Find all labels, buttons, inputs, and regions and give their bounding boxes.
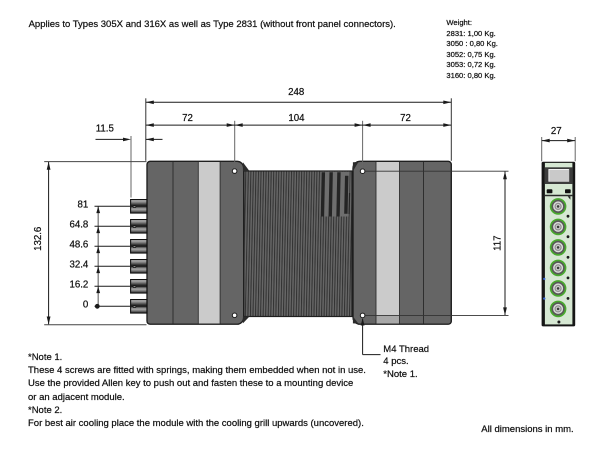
svg-text:11.5: 11.5 [96,124,114,135]
svg-text:81: 81 [78,200,89,211]
svg-text:27: 27 [551,126,562,137]
svg-text:132.6: 132.6 [33,227,44,251]
svg-text:248: 248 [288,87,304,98]
svg-text:72: 72 [182,113,193,124]
svg-text:16.2: 16.2 [69,280,88,291]
svg-text:64.8: 64.8 [69,220,88,231]
svg-text:117: 117 [493,235,504,250]
svg-text:0: 0 [83,300,89,311]
svg-text:32.4: 32.4 [69,260,88,271]
svg-text:72: 72 [400,113,411,124]
svg-text:104: 104 [288,113,305,124]
svg-text:48.6: 48.6 [69,240,88,251]
